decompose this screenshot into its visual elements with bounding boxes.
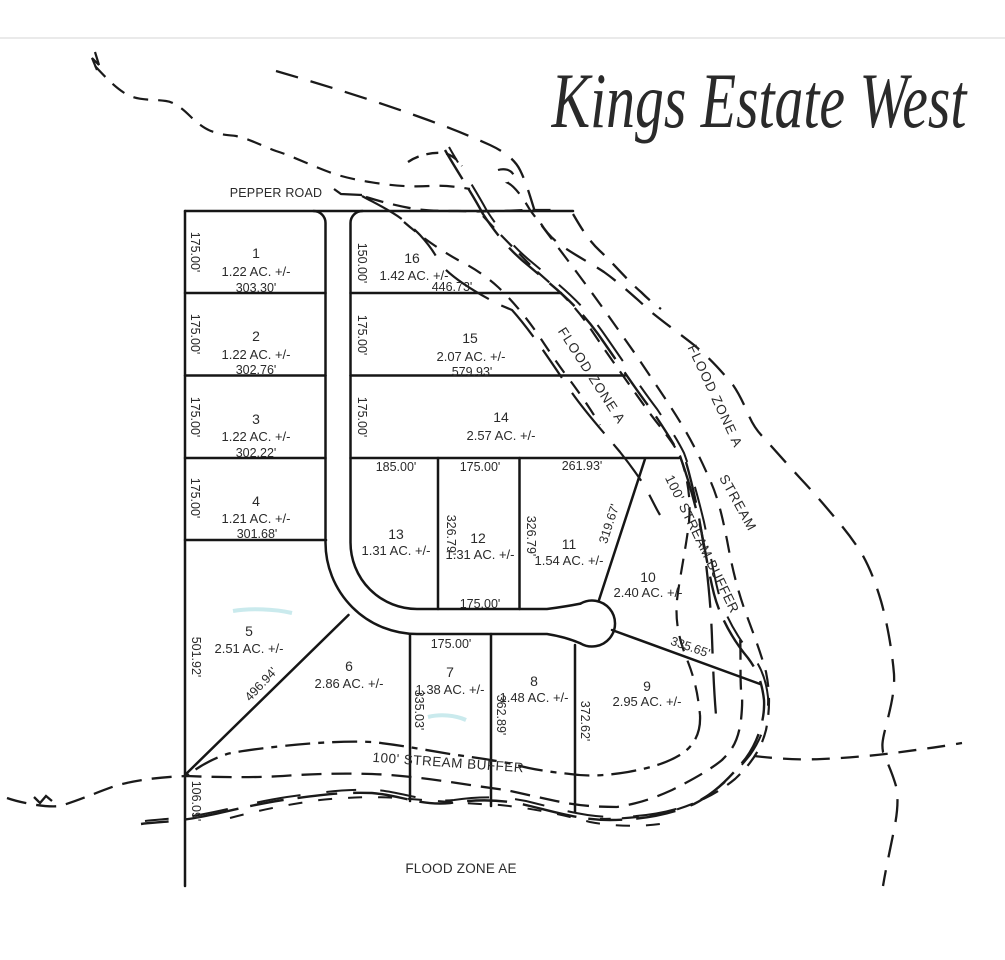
svg-text:175.00': 175.00' (431, 637, 472, 651)
svg-text:302.76': 302.76' (236, 363, 277, 377)
svg-text:175.00': 175.00' (460, 597, 501, 611)
svg-text:175.00': 175.00' (188, 232, 202, 273)
svg-text:175.00': 175.00' (355, 315, 369, 356)
svg-text:175.00': 175.00' (188, 314, 202, 355)
svg-text:1.21 AC. +/-: 1.21 AC. +/- (221, 511, 290, 526)
svg-text:335.03': 335.03' (412, 690, 426, 731)
svg-text:10: 10 (640, 569, 656, 585)
svg-text:175.00': 175.00' (188, 478, 202, 519)
svg-text:15: 15 (462, 330, 478, 346)
svg-text:16: 16 (404, 250, 420, 266)
svg-text:579.93': 579.93' (452, 365, 493, 379)
svg-text:8: 8 (530, 673, 538, 689)
svg-text:1.48 AC. +/-: 1.48 AC. +/- (499, 690, 568, 705)
svg-text:5: 5 (245, 623, 253, 639)
svg-text:362.89': 362.89' (494, 695, 508, 736)
svg-text:2.86 AC. +/-: 2.86 AC. +/- (314, 676, 383, 691)
svg-text:185.00': 185.00' (376, 460, 417, 474)
svg-text:326.79': 326.79' (444, 515, 458, 556)
svg-text:1.22 AC. +/-: 1.22 AC. +/- (221, 429, 290, 444)
svg-text:2.07 AC. +/-: 2.07 AC. +/- (436, 349, 505, 364)
svg-text:1.22 AC. +/-: 1.22 AC. +/- (221, 347, 290, 362)
svg-text:372.62': 372.62' (578, 701, 592, 742)
svg-text:150.00': 150.00' (355, 243, 369, 284)
svg-text:PEPPER ROAD: PEPPER ROAD (230, 186, 323, 200)
svg-text:11: 11 (562, 536, 577, 552)
svg-text:2.95 AC. +/-: 2.95 AC. +/- (612, 694, 681, 709)
svg-text:301.68': 301.68' (237, 527, 278, 541)
svg-text:446.73': 446.73' (432, 280, 473, 294)
svg-text:6: 6 (345, 658, 353, 674)
svg-text:Kings Estate West: Kings Estate West (551, 58, 968, 144)
svg-text:1.31 AC. +/-: 1.31 AC. +/- (361, 543, 430, 558)
svg-text:1.22 AC. +/-: 1.22 AC. +/- (221, 264, 290, 279)
svg-text:3: 3 (252, 411, 260, 427)
svg-text:303.30': 303.30' (236, 281, 277, 295)
svg-text:175.00': 175.00' (355, 397, 369, 438)
svg-text:FLOOD ZONE AE: FLOOD ZONE AE (405, 861, 516, 876)
svg-text:2.40 AC. +/-: 2.40 AC. +/- (613, 585, 682, 600)
svg-text:2.51 AC. +/-: 2.51 AC. +/- (214, 641, 283, 656)
svg-text:9: 9 (643, 678, 651, 694)
svg-text:7: 7 (446, 664, 454, 680)
svg-text:326.79': 326.79' (524, 516, 538, 557)
svg-text:14: 14 (493, 409, 509, 425)
svg-text:302.22': 302.22' (236, 446, 277, 460)
svg-text:12: 12 (470, 530, 486, 546)
svg-text:261.93': 261.93' (562, 459, 603, 473)
svg-text:1: 1 (252, 245, 260, 261)
svg-text:1.54 AC. +/-: 1.54 AC. +/- (534, 553, 603, 568)
svg-text:2.57 AC. +/-: 2.57 AC. +/- (466, 428, 535, 443)
svg-text:13: 13 (388, 526, 404, 542)
svg-text:106.09': 106.09' (189, 781, 203, 822)
svg-text:2: 2 (252, 328, 260, 344)
svg-text:175.00': 175.00' (460, 460, 501, 474)
svg-text:175.00': 175.00' (188, 397, 202, 438)
svg-text:4: 4 (252, 493, 260, 509)
svg-text:501.92': 501.92' (189, 637, 203, 678)
